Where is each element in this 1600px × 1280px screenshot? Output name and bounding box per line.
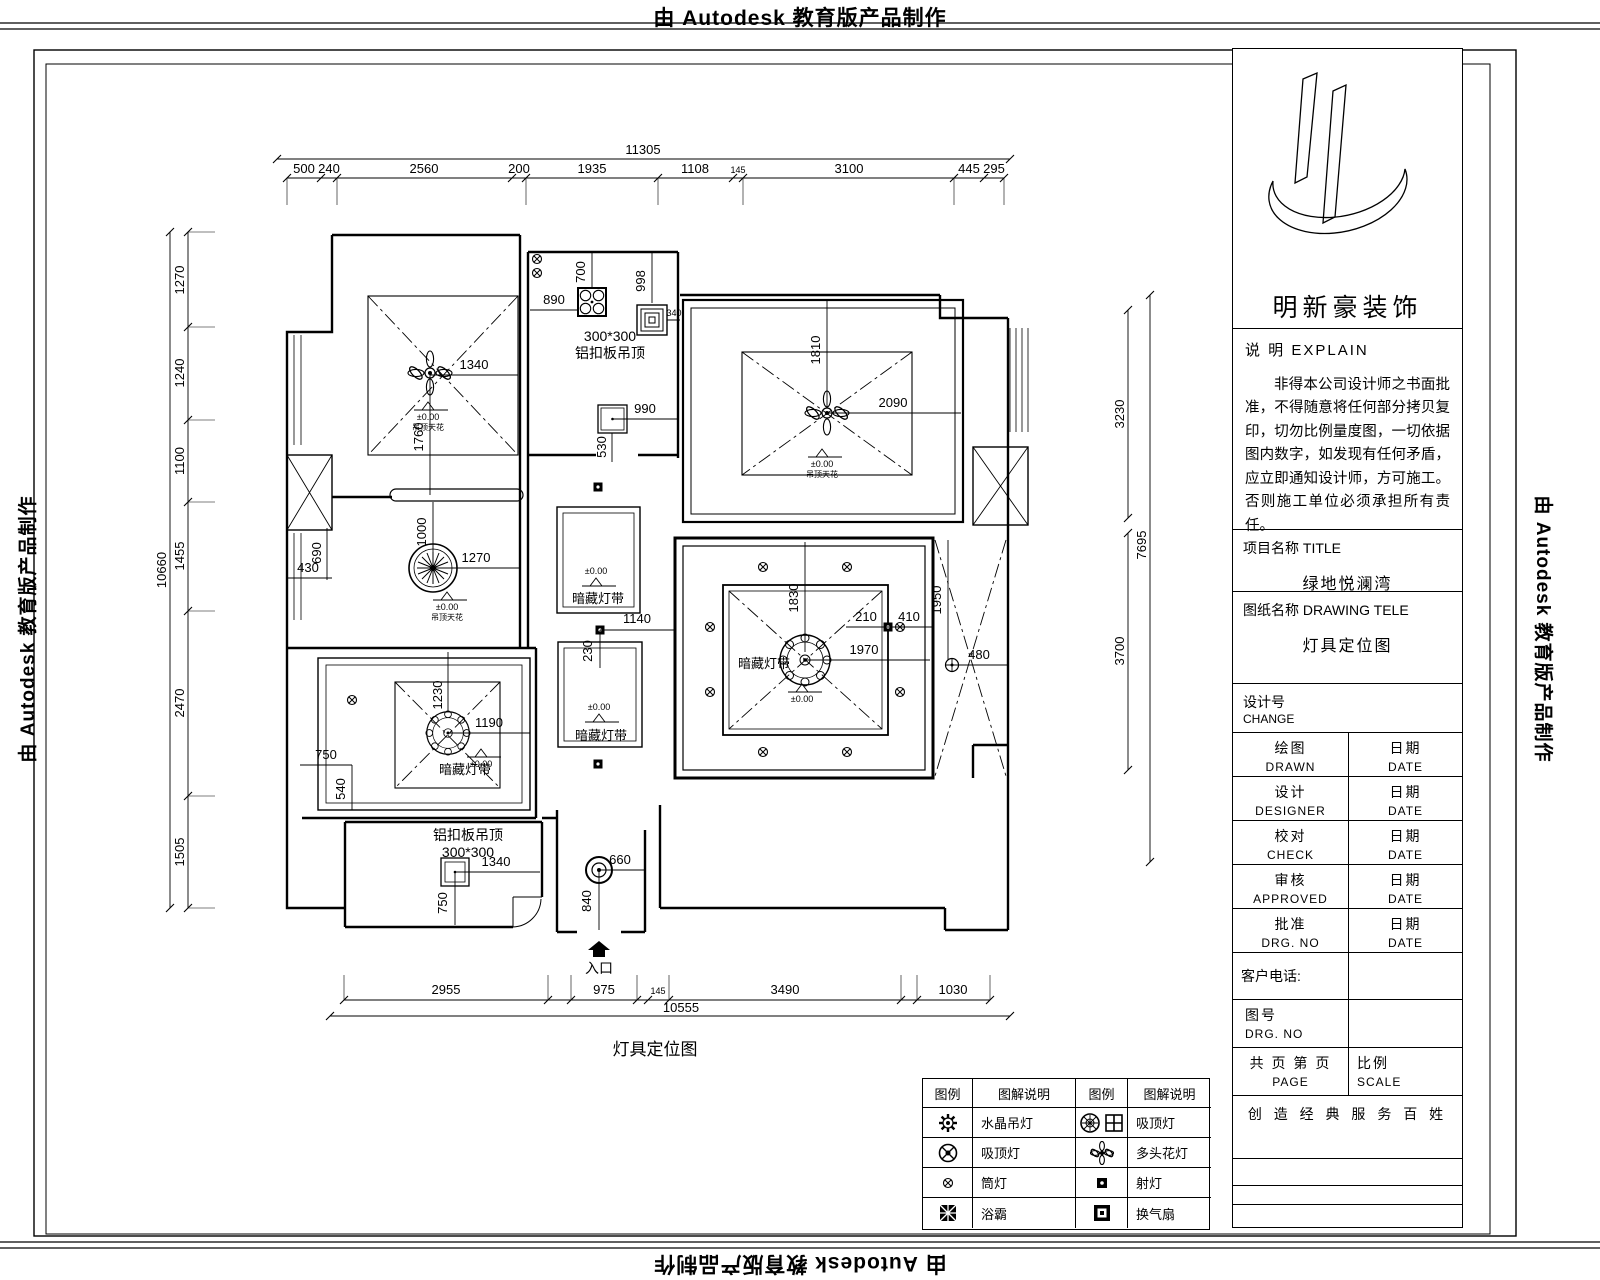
dim: 750 [315,747,337,762]
dim: 1100 [172,447,187,475]
design-no-en: CHANGE [1243,712,1452,726]
drawing-caption: 灯具定位图 [613,1040,698,1059]
project-section: 项目名称 TITLE 绿地悦澜湾 [1233,529,1462,591]
legend-label: 射灯 [1128,1168,1211,1198]
elevation-value: ±0.00 [588,702,610,712]
row-en: DRG. NO [1241,936,1340,950]
fig-en: DRG. NO [1241,1027,1340,1041]
dim: 1190 [475,715,503,730]
elevation-value: ±0.00 [470,759,492,769]
dim: 1108 [681,161,709,176]
sign-row-approved: 审核APPROVED 日期DATE [1233,864,1462,908]
logo-stroke [1295,73,1317,183]
elevation-value: ±0.00 [417,412,439,422]
company-name: 明新豪装饰 [1233,288,1462,324]
legend-label: 水晶吊灯 [973,1108,1076,1138]
dim: 1030 [939,982,968,997]
legend-header: 图例 [923,1079,973,1108]
dim: 1340 [460,357,489,372]
dim: 430 [297,560,319,575]
figure-no-value [1349,1000,1462,1047]
scale-cn: 比例 [1357,1053,1454,1073]
crystal-pendant-icon [923,1108,973,1138]
dim: 295 [983,161,1005,176]
row-en: DRAWN [1241,760,1340,774]
dim: 1455 [172,542,187,571]
dim-total-bottom: 10555 [663,1000,699,1015]
drawing-label: 图纸名称 DRAWING TELE [1243,600,1452,620]
design-no-cn: 设计号 [1243,692,1452,712]
kitchen-square-lamp [578,288,606,316]
dim: 750 [435,892,450,914]
dim: 700 [573,261,588,283]
legend-header: 图解说明 [973,1079,1076,1108]
elevation-value: ±0.00 [811,459,833,469]
page-cn: 共 页 第 页 [1241,1053,1340,1073]
elevation-value: ±0.00 [585,566,607,576]
elevation-value: ±0.00 [436,602,458,612]
shaft-right [973,447,1028,525]
spotlight-icon [1076,1168,1128,1198]
dim: 1935 [578,161,607,176]
dim: 1810 [808,336,823,365]
ceiling-lamp-round-icon [1076,1108,1128,1138]
fig-cn: 图号 [1241,1005,1340,1025]
dim: 1140 [623,611,651,626]
legend-label: 换气扇 [1128,1198,1211,1228]
page-scale-section: 共 页 第 页PAGE 比例SCALE [1233,1047,1462,1095]
dim: 145 [650,986,665,996]
dim: 1230 [430,681,445,710]
row-date-cn: 日期 [1357,870,1454,890]
elevation-note: 吊顶天花 [412,422,444,432]
dim-total-left: 10660 [154,552,169,588]
dim: 1000 [414,518,429,547]
dim: 975 [593,982,615,997]
dim: 1970 [850,642,879,657]
empty-row [1233,1185,1462,1204]
dim: 445 [958,161,980,176]
company-logo-section: 明新豪装饰 [1233,49,1462,328]
plot-stamp-top: 由 Autodesk 教育版产品制作 [0,2,1600,32]
exhaust-fan-icon [1076,1198,1128,1228]
dim: 2470 [172,689,187,718]
row-date-cn: 日期 [1357,782,1454,802]
ceiling-lamp-icon [923,1138,973,1168]
phone-value [1349,953,1462,999]
sign-row-ratify: 批准DRG. NO 日期DATE [1233,908,1462,952]
dim: 1240 [172,359,187,388]
row-en: CHECK [1241,848,1340,862]
entrance-label: 入口 [585,960,613,976]
dim: 145 [730,165,745,175]
bath-ceiling-label: 300*300 [442,844,494,860]
design-no-section: 设计号 CHANGE [1233,683,1462,732]
empty-row [1233,1158,1462,1185]
row-date-cn: 日期 [1357,826,1454,846]
downlight-icon [923,1168,973,1198]
explain-text: 非得本公司设计师之书面批准，不得随意将任何部分拷贝复印，切勿比例量度图，一切依据… [1245,374,1450,538]
empty-row [1233,1204,1462,1229]
exhaust-fan [637,305,667,335]
bath-heater-icon [923,1198,973,1228]
dim: 1270 [462,550,491,565]
entrance-arrow-icon [588,941,610,957]
dim-total-top: 11305 [625,142,660,157]
concealed-strip-label: 暗藏灯带 [738,656,790,671]
row-cn: 批准 [1241,914,1340,934]
row-cn: 绘图 [1241,738,1340,758]
row-date-en: DATE [1357,848,1454,862]
concealed-strip-label: 暗藏灯带 [575,728,627,743]
dim: 200 [508,161,530,176]
elevation-note: 吊顶天花 [806,469,838,479]
sign-row-drawn: 绘图DRAWN 日期DATE [1233,732,1462,776]
dimension-labels: 11305 500 240 2560 200 1935 1108 145 310… [154,142,1149,1015]
row-en: APPROVED [1241,892,1340,906]
dim: 530 [594,436,609,458]
explain-label: 说 明 EXPLAIN [1245,339,1450,360]
plot-stamp-bottom: 由 Autodesk 教育版产品制作 [0,1250,1600,1280]
bath-ceiling-label: 铝扣板吊顶 [433,827,503,843]
dim: 890 [543,292,565,307]
dim-total-right: 7695 [1134,531,1149,560]
dim: 230 [580,640,595,662]
legend-header: 图例 [1076,1079,1128,1108]
project-label: 项目名称 TITLE [1243,538,1452,558]
explain-section: 说 明 EXPLAIN 非得本公司设计师之书面批准，不得随意将任何部分拷贝复印，… [1233,328,1462,529]
drawing-value: 灯具定位图 [1243,632,1452,656]
phone-section: 客户电话: [1233,952,1462,999]
legend-label: 吸顶灯 [1128,1108,1211,1138]
row-date-cn: 日期 [1357,914,1454,934]
title-block: 明新豪装饰 说 明 EXPLAIN 非得本公司设计师之书面批准，不得随意将任何部… [1232,48,1463,1228]
row-cn: 审核 [1241,870,1340,890]
page-en: PAGE [1241,1075,1340,1089]
dim: 1270 [172,266,187,295]
sign-row-designer: 设计DESIGNER 日期DATE [1233,776,1462,820]
legend-label: 多头花灯 [1128,1138,1211,1168]
drawing-name-section: 图纸名称 DRAWING TELE 灯具定位图 [1233,591,1462,683]
dim: 998 [633,270,648,292]
elevation-value: ±0.00 [791,694,813,704]
legend-table: 图例 图解说明 图例 图解说明 水晶吊灯 吸顶灯 吸顶灯 多头花灯 筒灯 射灯 [922,1078,1210,1230]
row-date-en: DATE [1357,936,1454,950]
living-room-border [675,538,933,778]
dim: 1830 [786,584,801,613]
dim: 3490 [771,982,800,997]
row-en: DESIGNER [1241,804,1340,818]
row-date-en: DATE [1357,804,1454,818]
elevation-note: 吊顶天花 [431,612,463,622]
kitchen-ceiling-label: 300*300 [584,328,636,344]
curtain-box [390,489,523,501]
row-cn: 校对 [1241,826,1340,846]
dim: 3230 [1112,400,1127,429]
plan-labels: 300*300 铝扣板吊顶 铝扣板吊顶 300*300 暗藏灯带 暗藏灯带 暗藏… [433,328,790,1059]
multi-head-lamp-icon [1076,1138,1128,1168]
legend-label: 吸顶灯 [973,1138,1076,1168]
concealed-strip-label: 暗藏灯带 [572,591,624,606]
dim: 3100 [835,161,864,176]
plot-stamp-left: 由 Autodesk 教育版产品制作 [13,419,35,839]
sign-row-check: 校对CHECK 日期DATE [1233,820,1462,864]
shower-corner [513,897,542,927]
row-date-en: DATE [1357,892,1454,906]
dim: 840 [579,890,594,912]
dim: 990 [634,401,656,416]
dim: 210 [855,609,877,624]
legend-label: 筒灯 [973,1168,1076,1198]
scale-en: SCALE [1357,1075,1454,1089]
walls [287,235,1028,932]
kitchen-ceiling-label: 铝扣板吊顶 [575,345,645,361]
bedroom2-ceiling [318,658,530,810]
shaft-left [287,455,332,530]
dim: 2955 [432,982,461,997]
slogan: 创 造 经 典 服 务 百 姓 [1233,1095,1462,1158]
window-lines [287,328,1028,620]
dim: 410 [898,609,920,624]
dim: 2090 [879,395,908,410]
dim: 540 [333,778,348,800]
legend-label: 浴霸 [973,1198,1076,1228]
dim: 1505 [172,838,187,867]
dim: 1950 [929,586,944,615]
row-cn: 设计 [1241,782,1340,802]
dim: 340 [666,308,681,318]
row-date-en: DATE [1357,760,1454,774]
dim: 500 [293,161,315,176]
dim: 3700 [1112,637,1127,666]
row-date-cn: 日期 [1357,738,1454,758]
company-logo [1233,49,1462,279]
dim: 240 [318,161,340,176]
plot-stamp-right: 由 Autodesk 教育版产品制作 [1536,419,1558,839]
cad-sheet: 由 Autodesk 教育版产品制作 由 Autodesk 教育版产品制作 由 … [0,0,1600,1280]
dim: 660 [609,852,631,867]
dim: 480 [968,647,990,662]
dim: 2560 [410,161,439,176]
logo-stroke [1323,85,1346,223]
figure-no-section: 图号DRG. NO [1233,999,1462,1047]
phone-label: 客户电话: [1241,966,1301,986]
legend-header: 图解说明 [1128,1079,1211,1108]
